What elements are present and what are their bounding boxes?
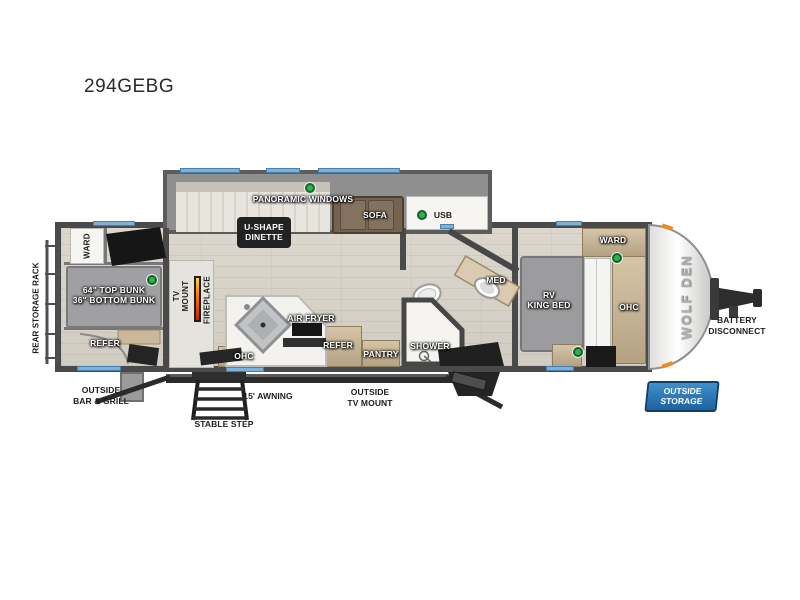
- wolf-den-logo: WOLF DEN: [679, 254, 694, 339]
- rear-top-window: [93, 221, 135, 226]
- awning-bar-highlight: [166, 374, 454, 377]
- kitchen-window: [226, 367, 264, 372]
- rear-bottom-window: [77, 366, 121, 371]
- bedroom-tv: [586, 346, 616, 367]
- shower-label: SHOWER: [410, 342, 449, 352]
- outside-tv-mount-line2: TV MOUNT: [347, 398, 392, 408]
- bedroom-bottom-window: [546, 366, 574, 371]
- pillow-seam: [584, 258, 597, 350]
- slideout-window-2: [266, 168, 300, 173]
- bedroom-ward-label: WARD: [600, 236, 627, 246]
- rear-storage-rack-label: REAR STORAGE RACK: [31, 262, 40, 353]
- outside-storage-line2: STORAGE: [660, 397, 703, 407]
- outside-bar-grill-line2: BAR & GRILL: [73, 396, 129, 406]
- usb-dot-legend: [417, 210, 427, 220]
- floorplan-canvas: 294GEBG U-SHAPE DINETTE: [0, 0, 800, 600]
- battery-disconnect-line2: DISCONNECT: [708, 326, 765, 336]
- bedroom-top-window: [556, 221, 582, 226]
- awning-bar: [166, 374, 454, 383]
- bath-wall-left: [400, 228, 406, 270]
- usb-dot-nightstand: [573, 347, 583, 357]
- usb-dot-dinette: [305, 183, 315, 193]
- outside-bar-grill-line1: OUTSIDE: [82, 385, 120, 395]
- outside-tv-panel: [451, 372, 486, 390]
- fireplace-icon: [194, 276, 201, 322]
- panoramic-windows-label: PANORAMIC WINDOWS: [253, 195, 354, 205]
- bedroom-ohc-label: OHC: [619, 303, 639, 313]
- outside-storage-badge: OUTSIDE STORAGE: [644, 381, 719, 412]
- usb-legend-label: USB: [434, 210, 452, 220]
- battery-disconnect-line1: BATTERY: [717, 315, 757, 325]
- rear-refer-label: REFER: [90, 339, 120, 349]
- med-label: MED: [486, 276, 506, 286]
- bed-label-line2: KING BED: [527, 301, 570, 311]
- pantry-label: PANTRY: [363, 350, 398, 360]
- slideout-window-1: [180, 168, 240, 173]
- tv-mount-label: TVMOUNT: [172, 281, 190, 312]
- page-title: 294GEBG: [84, 76, 174, 98]
- sofa-label: SOFA: [363, 211, 387, 221]
- usb-dot-bunk: [147, 275, 157, 285]
- slideout-end-window: [440, 224, 454, 229]
- rear-ward-label: WARD: [83, 233, 92, 259]
- outside-tv-bracket: [448, 372, 500, 396]
- stable-step-label: STABLE STEP: [194, 419, 253, 429]
- tv-mount-line1: TV: [172, 281, 181, 312]
- step-rail-left: [193, 380, 198, 420]
- step-platform: [192, 372, 246, 380]
- hitch-tongue: [719, 288, 756, 310]
- awning-arm-right: [446, 377, 502, 407]
- usb-dot-ward: [612, 253, 622, 263]
- kitchen-ohc-label: OHC: [234, 352, 254, 362]
- air-fryer-label: AIR FRYER: [287, 314, 334, 324]
- tv-mount-line2: MOUNT: [181, 281, 190, 312]
- dinette-label-line2: DINETTE: [245, 233, 283, 243]
- awning-label: 15' AWNING: [243, 391, 292, 401]
- fireplace-label: FIREPLACE: [203, 276, 212, 324]
- slideout-window-3: [318, 168, 400, 173]
- bath-bedroom-wall: [512, 228, 518, 366]
- bunk-label-line2: 36" BOTTOM BUNK: [73, 296, 155, 306]
- hitch-coupler: [753, 289, 762, 307]
- kitchen-refer-label: REFER: [323, 341, 353, 351]
- dinette-badge: U-SHAPE DINETTE: [237, 217, 291, 248]
- outside-tv-mount-line1: OUTSIDE: [351, 387, 389, 397]
